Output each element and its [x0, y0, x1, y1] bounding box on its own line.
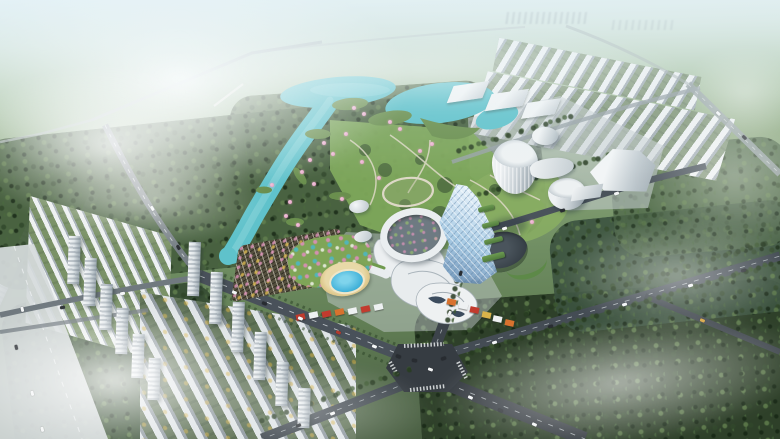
storefront-unit	[481, 311, 491, 319]
tall-residential-tower	[83, 258, 97, 306]
road-horizon	[0, 120, 92, 142]
blossom-tree	[430, 142, 434, 146]
blossom-tree	[288, 200, 292, 204]
aerial-rendering-scene	[0, 0, 780, 439]
tall-residential-tower	[275, 362, 289, 406]
blossom-tree	[377, 176, 381, 180]
civic-round-pavilion	[532, 127, 558, 145]
tall-residential-tower	[115, 308, 129, 354]
road-east-branch	[645, 296, 780, 352]
boulevard-northwest	[105, 125, 200, 276]
blossom-tree	[388, 120, 392, 124]
tall-residential-tower	[253, 332, 267, 380]
blossom-tree	[360, 160, 364, 164]
blossom-tree	[530, 220, 534, 224]
tall-residential-tower	[209, 272, 223, 324]
blossom-tree	[322, 141, 326, 145]
blossom-tree	[308, 158, 312, 162]
tall-residential-tower	[99, 284, 113, 330]
blossom-tree	[300, 170, 304, 174]
tall-residential-tower	[147, 358, 160, 400]
tall-residential-tower	[131, 334, 145, 378]
road-horizon	[92, 42, 322, 120]
blossom-tree	[296, 223, 300, 227]
blossom-tree	[352, 106, 356, 110]
blossom-tree	[398, 127, 402, 131]
blossom-tree	[362, 112, 366, 116]
blossom-tree	[418, 149, 422, 153]
tall-residential-tower	[187, 242, 201, 296]
blossom-tree	[340, 197, 344, 201]
tall-residential-tower	[231, 302, 245, 352]
highway-east	[688, 84, 780, 174]
blossom-tree	[312, 182, 316, 186]
tall-residential-tower	[297, 388, 310, 428]
blossom-tree	[344, 132, 348, 136]
lake-bridge	[214, 84, 243, 106]
blossom-tree	[284, 214, 288, 218]
storefront-unit	[492, 315, 502, 323]
blossom-tree	[270, 183, 274, 187]
blossom-tree	[331, 152, 335, 156]
road-distant	[252, 27, 525, 53]
tall-residential-tower	[67, 236, 81, 284]
road-distant	[566, 26, 688, 84]
storefront-unit	[347, 307, 357, 315]
